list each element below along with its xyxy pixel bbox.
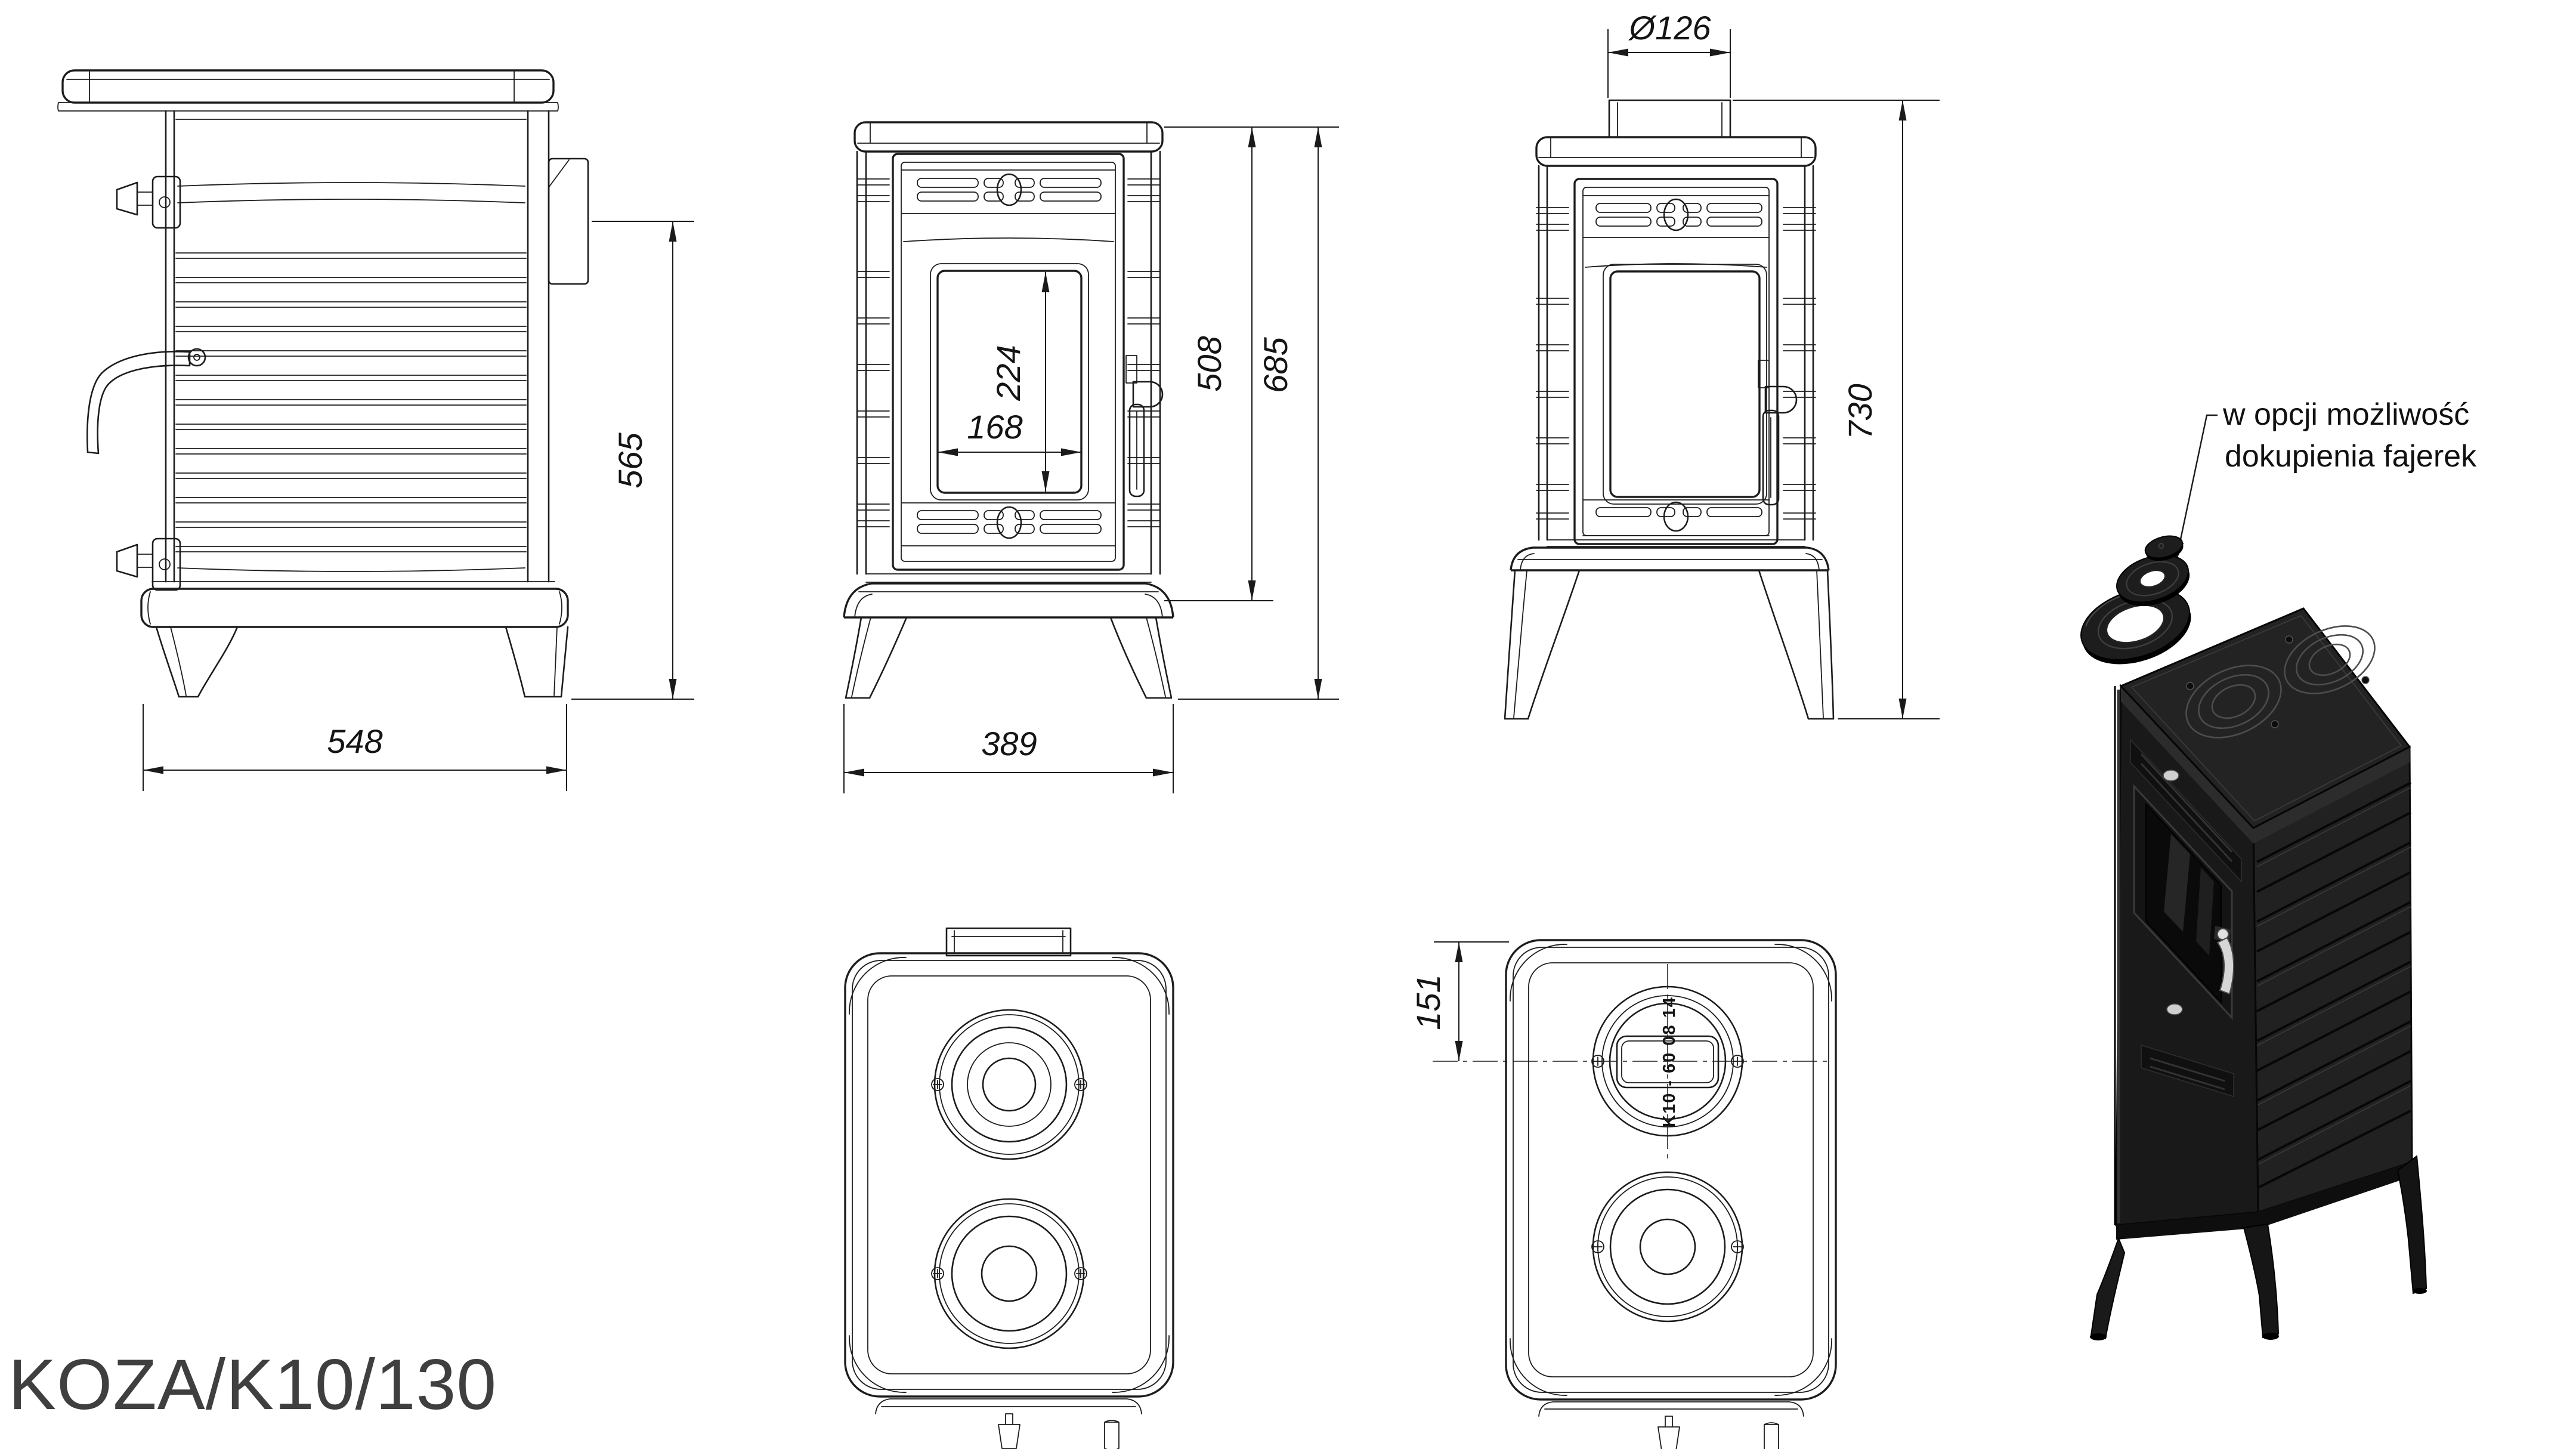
bottom-air-vent xyxy=(902,503,1115,546)
vent-knob-3d-bottom xyxy=(2167,1004,2182,1015)
casting-mark: K10 - 60 08 14 xyxy=(1660,996,1679,1127)
flue-pipe xyxy=(1609,100,1730,137)
dimension-548: 548 xyxy=(143,704,567,791)
latch-pin-icon xyxy=(1764,1423,1779,1449)
bottom-air-vent xyxy=(1583,500,1769,536)
product-render-3d: w opcji możliwość dokupienia fajerek xyxy=(2072,397,2477,1340)
dimension-389: 389 xyxy=(844,704,1173,793)
dim-side-width: 548 xyxy=(327,722,382,760)
rear-legs xyxy=(1505,570,1833,719)
leg-rear-right xyxy=(2398,1156,2426,1293)
vent-knob-icon xyxy=(997,507,1021,538)
option-note-line2: dokupienia fajerek xyxy=(2225,439,2477,474)
hotplate-rear xyxy=(932,1010,1087,1159)
dim-flue-diameter: Ø126 xyxy=(1628,9,1712,47)
dimension-168: 168 xyxy=(938,408,1081,452)
dim-front-width: 389 xyxy=(981,725,1037,762)
dimension-685: 685 xyxy=(1178,127,1339,699)
rear-view-with-flue xyxy=(1505,100,1833,719)
dimension-flue-diameter: Ø126 xyxy=(1608,9,1730,98)
top-air-vent xyxy=(1583,196,1769,237)
door-hinge-bottom xyxy=(117,539,180,590)
leg-front-right xyxy=(2244,1224,2278,1337)
dimension-730: 730 xyxy=(1733,100,1940,719)
cook-rings xyxy=(2072,532,2200,677)
door-glass-frame xyxy=(1603,264,1767,504)
side-legs xyxy=(156,627,568,697)
dim-body-height: 508 xyxy=(1190,336,1228,391)
latch-pin-icon xyxy=(1105,1420,1119,1449)
dimension-151: 151 xyxy=(1409,942,1509,1061)
hotplate-front xyxy=(1592,1172,1743,1321)
page-title: KOZA/K10/130 xyxy=(8,1345,497,1425)
dim-glass-height: 224 xyxy=(989,345,1027,401)
door-glass xyxy=(1610,271,1759,497)
top-view-hotplates xyxy=(845,928,1173,1449)
dim-total-height: 685 xyxy=(1257,336,1294,393)
side-view xyxy=(58,70,588,697)
top-air-vent xyxy=(902,170,1115,214)
dim-glass-width: 168 xyxy=(967,408,1022,446)
dim-height-with-flue: 730 xyxy=(1841,384,1879,439)
vent-knob-icon xyxy=(997,174,1021,205)
leg-front-left xyxy=(2091,1238,2124,1339)
door-handle-side xyxy=(87,349,205,453)
dimension-508: 508 xyxy=(1164,127,1339,601)
flue-box xyxy=(549,159,588,284)
door-handle-front xyxy=(1126,356,1162,496)
stove-3d xyxy=(2090,608,2427,1340)
shaker-knob-icon xyxy=(998,1414,1020,1448)
dimension-224: 224 xyxy=(989,272,1046,492)
dim-side-height: 565 xyxy=(611,432,649,488)
technical-drawing-sheet: 548 565 xyxy=(0,0,2576,1449)
option-note-line1: w opcji możliwość xyxy=(2222,397,2469,432)
note-leader-line xyxy=(2176,415,2218,562)
dim-flue-center-offset: 151 xyxy=(1409,974,1447,1030)
vent-knob-3d-top xyxy=(2163,770,2179,781)
hotplate-front xyxy=(932,1199,1087,1348)
shaker-knob-icon xyxy=(1658,1416,1680,1449)
front-legs xyxy=(846,617,1171,698)
dimension-565: 565 xyxy=(571,221,694,699)
vent-knob-icon xyxy=(1664,199,1688,230)
door-hinge-top xyxy=(117,177,180,228)
drawing-canvas: 548 565 xyxy=(0,0,2576,1449)
